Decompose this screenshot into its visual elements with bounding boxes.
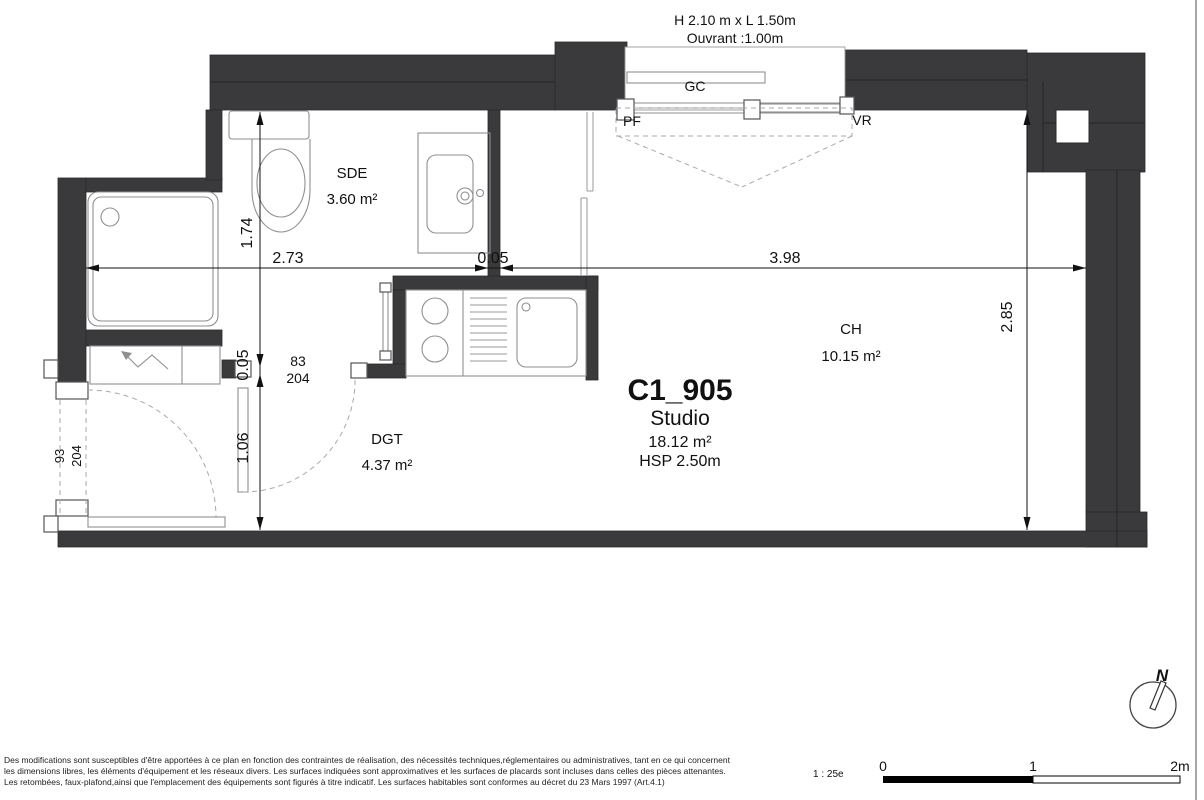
dim-sde-depth: 1.74 [239, 217, 256, 248]
guardrail-label: GC [685, 78, 706, 94]
unit-type: Studio [650, 407, 710, 430]
entry-door-width: 93 [52, 449, 67, 463]
room-dgt-area: 4.37 m² [362, 457, 413, 474]
wall-right [1086, 170, 1140, 512]
wall-kitchen-east [586, 276, 598, 380]
dim-ch-depth: 2.85 [999, 301, 1016, 332]
dgt-door-post-right [351, 363, 367, 378]
wall-left [58, 178, 86, 392]
room-sde-name: SDE [337, 165, 368, 182]
duct-arrow [126, 355, 168, 369]
scale-tick-2: 2m [1170, 758, 1189, 774]
entry-door-height: 204 [69, 445, 84, 467]
north-arrow: N [1130, 666, 1176, 728]
wall-kitchen-west [393, 290, 406, 364]
room-ch-area: 10.15 m² [821, 348, 880, 365]
drainer-lines [470, 298, 507, 361]
duct-shaft-hole [1056, 110, 1089, 143]
scale-bar: 1 : 25e 0 1 2m [813, 758, 1190, 783]
window-opening-note: Ouvrant :1.00m [687, 30, 784, 46]
washbasin-vanity [418, 133, 490, 253]
wall-sde-west [206, 110, 222, 180]
shower-drain [101, 208, 119, 226]
north-needle [1150, 681, 1166, 710]
fixtures [44, 111, 593, 532]
entry-door-leaf [88, 517, 225, 527]
dgt-door-height: 204 [286, 370, 310, 386]
entry-frame-tab-bottom [44, 516, 58, 532]
unit-id: C1_905 [627, 374, 732, 407]
window-door-label: PF [623, 113, 641, 129]
basin-drain [457, 188, 473, 204]
room-labels: SDE 3.60 m² DGT 4.37 m² CH 10.15 m² 83 2… [52, 165, 881, 474]
sde-sliding-door [380, 283, 391, 360]
basin-tap [477, 190, 484, 197]
footer-line-2: les dimensions libres, les éléments d'éq… [4, 766, 726, 776]
window-assembly: H 2.10 m x L 1.50m Ouvrant :1.00m GC PF … [616, 12, 872, 187]
entry-door-swing [88, 390, 216, 518]
wall-shower-south [86, 330, 222, 346]
wall-shower-north [86, 178, 222, 192]
walls [58, 42, 1147, 547]
entry-door-post-bottom [56, 500, 88, 516]
scale-ratio: 1 : 25e [813, 769, 844, 780]
shutter-label: VR [852, 112, 871, 128]
window-jamb-center [744, 100, 760, 119]
scale-bar-open [1033, 776, 1180, 783]
floor-plan-sheet: H 2.10 m x L 1.50m Ouvrant :1.00m GC PF … [0, 0, 1204, 800]
unit-area: 18.12 m² [648, 434, 712, 451]
floor-plan-drawing: H 2.10 m x L 1.50m Ouvrant :1.00m GC PF … [0, 0, 1204, 800]
footer-line-1: Des modifications sont susceptibles d'êt… [4, 755, 731, 765]
kitchenette [406, 290, 586, 376]
north-label: N [1156, 666, 1169, 685]
room-dgt-name: DGT [371, 431, 403, 448]
disclaimer-footer: Des modifications sont susceptibles d'êt… [4, 755, 731, 787]
wall-top-block [555, 42, 627, 110]
room-sde-area: 3.60 m² [327, 191, 378, 208]
scale-bar-solid [883, 776, 1033, 783]
footer-line-3: Les retombées, faux-plafond,ainsi que l'… [4, 777, 665, 787]
sink-drain [522, 303, 530, 311]
dim-door-wall: 0.05 [235, 349, 252, 380]
room-ch-name: CH [840, 321, 862, 338]
utility-cabinet [90, 346, 220, 384]
toilet-bowl [257, 149, 305, 217]
wall-kitchen-north [393, 276, 598, 290]
entry-frame-tab-top [44, 360, 58, 378]
dgt-door-width: 83 [290, 353, 306, 369]
shower-tray [88, 192, 218, 326]
dim-ch-width: 3.98 [769, 250, 800, 267]
scale-tick-0: 0 [879, 758, 887, 774]
wall-kitchen-south-l [365, 364, 406, 378]
dim-wall-thickness: 0.05 [477, 250, 508, 267]
window-swing-right [742, 136, 852, 187]
wall-dgt-door-stub [222, 360, 236, 378]
dim-dgt-depth: 1.06 [235, 432, 252, 463]
burner-1 [422, 298, 448, 324]
unit-ceiling-height: HSP 2.50m [639, 453, 721, 470]
wall-bottom [58, 531, 1147, 547]
window-size-note: H 2.10 m x L 1.50m [674, 12, 796, 28]
dim-sde-width: 2.73 [272, 250, 303, 267]
burner-2 [422, 336, 448, 362]
scale-tick-1: 1 [1029, 758, 1037, 774]
title-block: C1_905 Studio 18.12 m² HSP 2.50m [627, 374, 732, 470]
window-swing-left [618, 136, 742, 187]
kitchen-sink [517, 298, 577, 367]
toilet [229, 111, 310, 232]
entry-door-post-top [56, 382, 88, 399]
glass-partition [581, 112, 593, 276]
